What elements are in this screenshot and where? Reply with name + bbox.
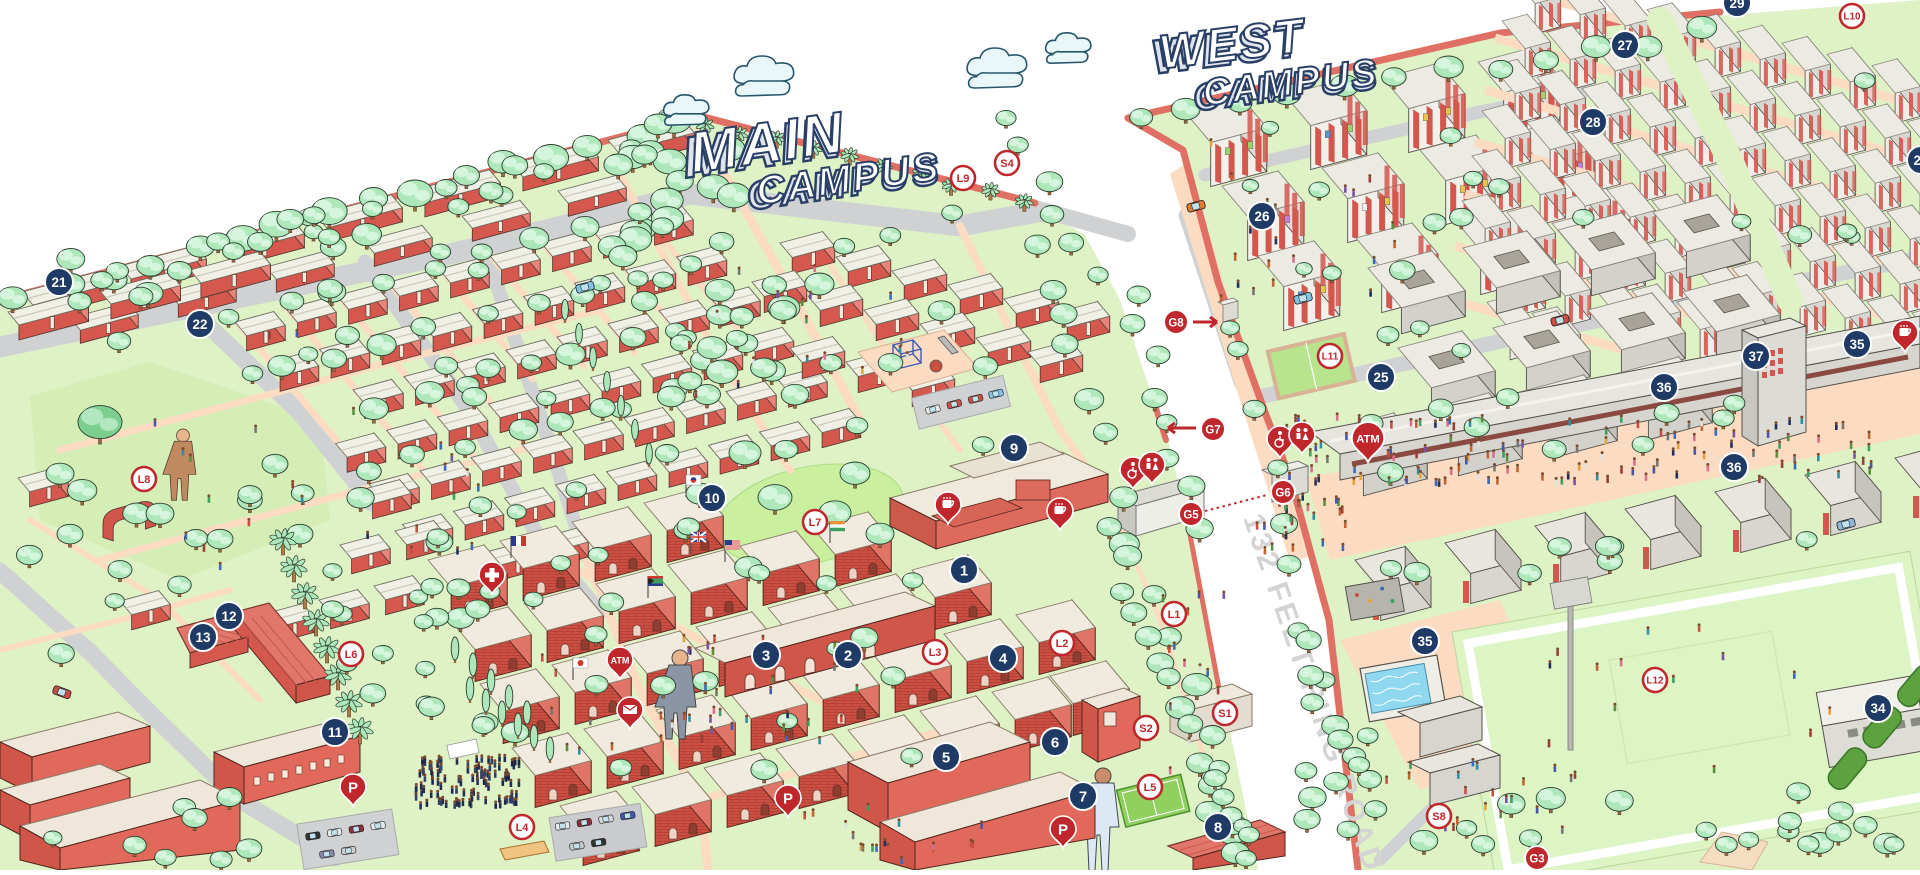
svg-text:36: 36 [1656, 380, 1672, 395]
svg-text:L7: L7 [809, 517, 822, 529]
svg-text:ATM: ATM [1356, 434, 1380, 446]
svg-text:G7: G7 [1205, 425, 1220, 437]
svg-text:L1: L1 [1168, 609, 1181, 621]
svg-text:G5: G5 [1183, 510, 1199, 522]
svg-text:11: 11 [328, 725, 343, 740]
svg-text:37: 37 [1748, 349, 1763, 364]
svg-text:S8: S8 [1432, 811, 1445, 823]
svg-text:8: 8 [1214, 819, 1222, 836]
svg-text:S4: S4 [1000, 158, 1014, 170]
svg-text:26: 26 [1254, 209, 1270, 224]
svg-text:21: 21 [51, 275, 67, 290]
svg-text:12: 12 [221, 609, 236, 624]
svg-text:27: 27 [1617, 38, 1632, 53]
svg-text:L6: L6 [345, 649, 358, 661]
svg-text:5: 5 [942, 749, 950, 766]
svg-text:7: 7 [1079, 788, 1087, 805]
svg-text:G6: G6 [1275, 488, 1290, 500]
svg-text:13: 13 [195, 630, 211, 645]
svg-text:S2: S2 [1139, 723, 1152, 735]
svg-text:25: 25 [1373, 370, 1389, 385]
svg-text:L5: L5 [1144, 782, 1157, 794]
svg-text:G8: G8 [1168, 318, 1184, 330]
svg-text:34: 34 [1870, 701, 1886, 716]
svg-text:35: 35 [1417, 634, 1433, 649]
svg-text:1: 1 [960, 562, 968, 579]
svg-text:L12: L12 [1646, 676, 1664, 687]
svg-text:L2: L2 [1056, 638, 1069, 650]
svg-text:L11: L11 [1322, 352, 1339, 363]
svg-text:4: 4 [999, 650, 1008, 667]
svg-text:10: 10 [704, 491, 719, 506]
svg-text:P: P [1058, 822, 1068, 839]
svg-text:L8: L8 [138, 474, 151, 486]
svg-text:36: 36 [1726, 460, 1742, 475]
svg-text:ATM: ATM [611, 656, 630, 666]
svg-text:G3: G3 [1529, 854, 1544, 866]
svg-text:P: P [348, 780, 358, 797]
svg-text:3: 3 [762, 647, 770, 664]
svg-text:L10: L10 [1843, 12, 1861, 23]
svg-text:24: 24 [1913, 153, 1920, 168]
svg-text:28: 28 [1585, 115, 1601, 130]
svg-text:P: P [783, 791, 793, 808]
svg-text:L3: L3 [929, 647, 942, 659]
svg-text:6: 6 [1051, 734, 1059, 751]
svg-text:35: 35 [1849, 337, 1865, 352]
svg-text:29: 29 [1729, 0, 1744, 11]
svg-text:22: 22 [192, 317, 207, 332]
svg-text:L9: L9 [957, 173, 970, 185]
svg-text:2: 2 [844, 647, 852, 664]
svg-text:S1: S1 [1218, 708, 1231, 720]
svg-text:9: 9 [1010, 440, 1018, 457]
svg-text:L4: L4 [516, 822, 530, 834]
